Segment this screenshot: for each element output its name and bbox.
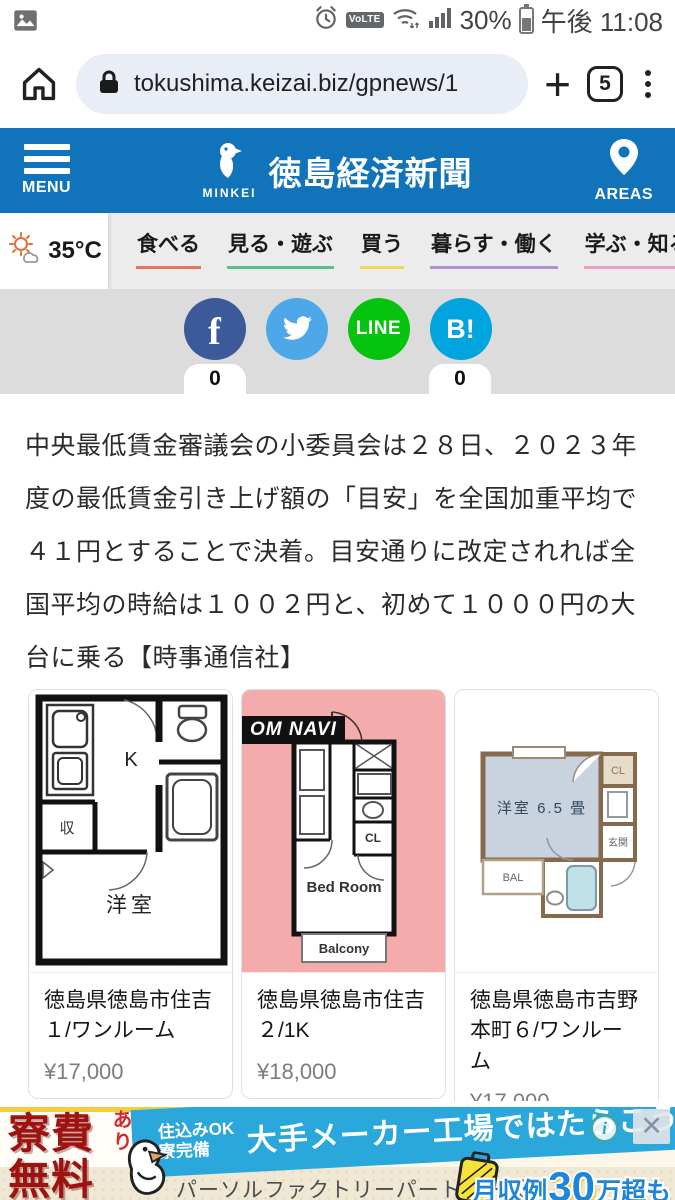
home-button[interactable] <box>18 63 60 105</box>
listing-card[interactable]: CL 洋室 6.5 畳 玄関 BAL 徳島県徳島市吉野本町６/ワンルーム ¥17… <box>454 689 659 1101</box>
ad-dorm-free-text: 寮費 無料 <box>8 1111 94 1200</box>
url-text: tokushima.keizai.biz/gpnews/1 <box>134 70 458 98</box>
clock-time: 午後 11:08 <box>541 2 663 39</box>
ad-close-button[interactable]: ✕ <box>633 1109 670 1144</box>
sun-cloud-icon <box>6 231 42 272</box>
listing-card[interactable]: K 収 洋室 徳島県徳島市住吉１/ワンルーム ¥17,000 <box>28 689 233 1099</box>
notification-image-icon <box>12 7 39 34</box>
plan2-cl-label: CL <box>365 831 381 845</box>
url-bar[interactable]: tokushima.keizai.biz/gpnews/1 <box>76 54 528 114</box>
lock-icon <box>98 69 120 100</box>
share-strip: f LINE B! 0 0 <box>0 289 675 394</box>
property-listings: K 収 洋室 徳島県徳島市住吉１/ワンルーム ¥17,000 <box>0 689 675 1101</box>
wifi-icon <box>391 5 421 36</box>
plan3-room-label: 洋室 6.5 畳 <box>497 800 587 817</box>
hatena-icon: B! <box>446 314 475 345</box>
line-share-button[interactable]: LINE <box>348 298 410 360</box>
ad-banner[interactable]: 住込みOK 寮完備 大手メーカー工場ではたらこう 寮費 無料 あり パーソルファ… <box>0 1107 675 1200</box>
twitter-bird-icon <box>280 310 314 349</box>
hatena-share-count: 0 <box>429 364 491 394</box>
browser-toolbar: tokushima.keizai.biz/gpnews/1 + 5 <box>0 40 675 128</box>
listing-location: 徳島県徳島市吉野本町６/ワンルーム <box>470 986 643 1077</box>
listing-location: 徳島県徳島市住吉１/ワンルーム <box>44 986 217 1047</box>
areas-button[interactable]: AREAS <box>594 138 653 204</box>
category-nav: 35°C 食べる 見る・遊ぶ 買う 暮らす・働く 学ぶ・知る <box>0 213 675 289</box>
tab-switcher-button[interactable]: 5 <box>587 66 623 102</box>
alarm-icon <box>313 5 339 36</box>
menu-label: MENU <box>22 179 71 197</box>
site-header: MENU MINKEI 徳島経済新聞 AREAS <box>0 128 675 213</box>
status-bar: VoLTE 30% 午後 11:08 <box>0 0 675 40</box>
line-icon: LINE <box>356 318 401 340</box>
battery-percent: 30% <box>460 5 512 36</box>
minkei-label: MINKEI <box>203 186 257 200</box>
roomnavi-watermark: OM NAVI <box>242 716 345 744</box>
listing-price: ¥17,000 <box>44 1059 217 1085</box>
signal-icon <box>428 5 453 35</box>
battery-icon <box>519 7 534 34</box>
site-title: 徳島経済新聞 <box>269 147 473 195</box>
nav-item-buy[interactable]: 買う <box>360 233 404 269</box>
nav-item-live-work[interactable]: 暮らす・働く <box>430 233 558 269</box>
plan2-bedroom-label: Bed Room <box>307 879 382 896</box>
listing-price: ¥18,000 <box>257 1059 430 1085</box>
volte-badge: VoLTE <box>346 12 384 28</box>
site-logo[interactable]: MINKEI 徳島経済新聞 <box>203 142 473 200</box>
ad-info-icon[interactable]: i <box>590 1114 619 1143</box>
new-tab-button[interactable]: + <box>544 61 571 107</box>
plan1-kitchen-label: K <box>124 749 138 771</box>
nav-item-see-play[interactable]: 見る・遊ぶ <box>227 233 334 269</box>
weather-widget[interactable]: 35°C <box>0 213 108 289</box>
plan2-balcony-label: Balcony <box>319 941 370 956</box>
listing-card[interactable]: CL Bed Room Balcony OM NAVI 徳島県徳島市住吉２/1K… <box>241 689 446 1099</box>
facebook-icon: f <box>208 310 221 354</box>
facebook-share-button[interactable]: f <box>184 298 246 360</box>
location-pin-icon <box>609 138 639 181</box>
plan1-closet-label: 収 <box>59 820 74 837</box>
floorplan-image-1: K 収 洋室 <box>29 690 232 973</box>
nav-item-eat[interactable]: 食べる <box>136 233 201 269</box>
facebook-share-count: 0 <box>184 364 246 394</box>
plan1-room-label: 洋室 <box>106 894 156 917</box>
plan3-cl-label: CL <box>611 765 625 777</box>
listing-location: 徳島県徳島市住吉２/1K <box>257 986 430 1047</box>
ad-income-text: 月収例 30 万超も <box>472 1167 671 1200</box>
minkei-bird-icon <box>213 142 247 185</box>
listing-price: ¥17,000 <box>470 1089 643 1101</box>
hatena-share-button[interactable]: B! <box>430 298 492 360</box>
nav-item-learn-know[interactable]: 学ぶ・知る <box>584 233 675 269</box>
plan3-bal-label: BAL <box>503 872 524 884</box>
twitter-share-button[interactable] <box>266 298 328 360</box>
menu-button[interactable]: MENU <box>22 144 71 197</box>
hamburger-icon <box>24 144 70 174</box>
article-body: 中央最低賃金審議会の小委員会は２８日、２０２３年度の最低賃金引き上げ額の「目安」… <box>0 394 675 689</box>
temperature: 35°C <box>48 237 102 265</box>
plan3-genkan-label: 玄関 <box>608 836 628 849</box>
ad-ari-text: あり <box>106 1109 135 1153</box>
floorplan-image-3: CL 洋室 6.5 畳 玄関 BAL <box>455 690 658 973</box>
browser-menu-button[interactable] <box>639 70 657 98</box>
areas-label: AREAS <box>594 186 653 204</box>
floorplan-image-2: CL Bed Room Balcony OM NAVI <box>242 690 445 973</box>
